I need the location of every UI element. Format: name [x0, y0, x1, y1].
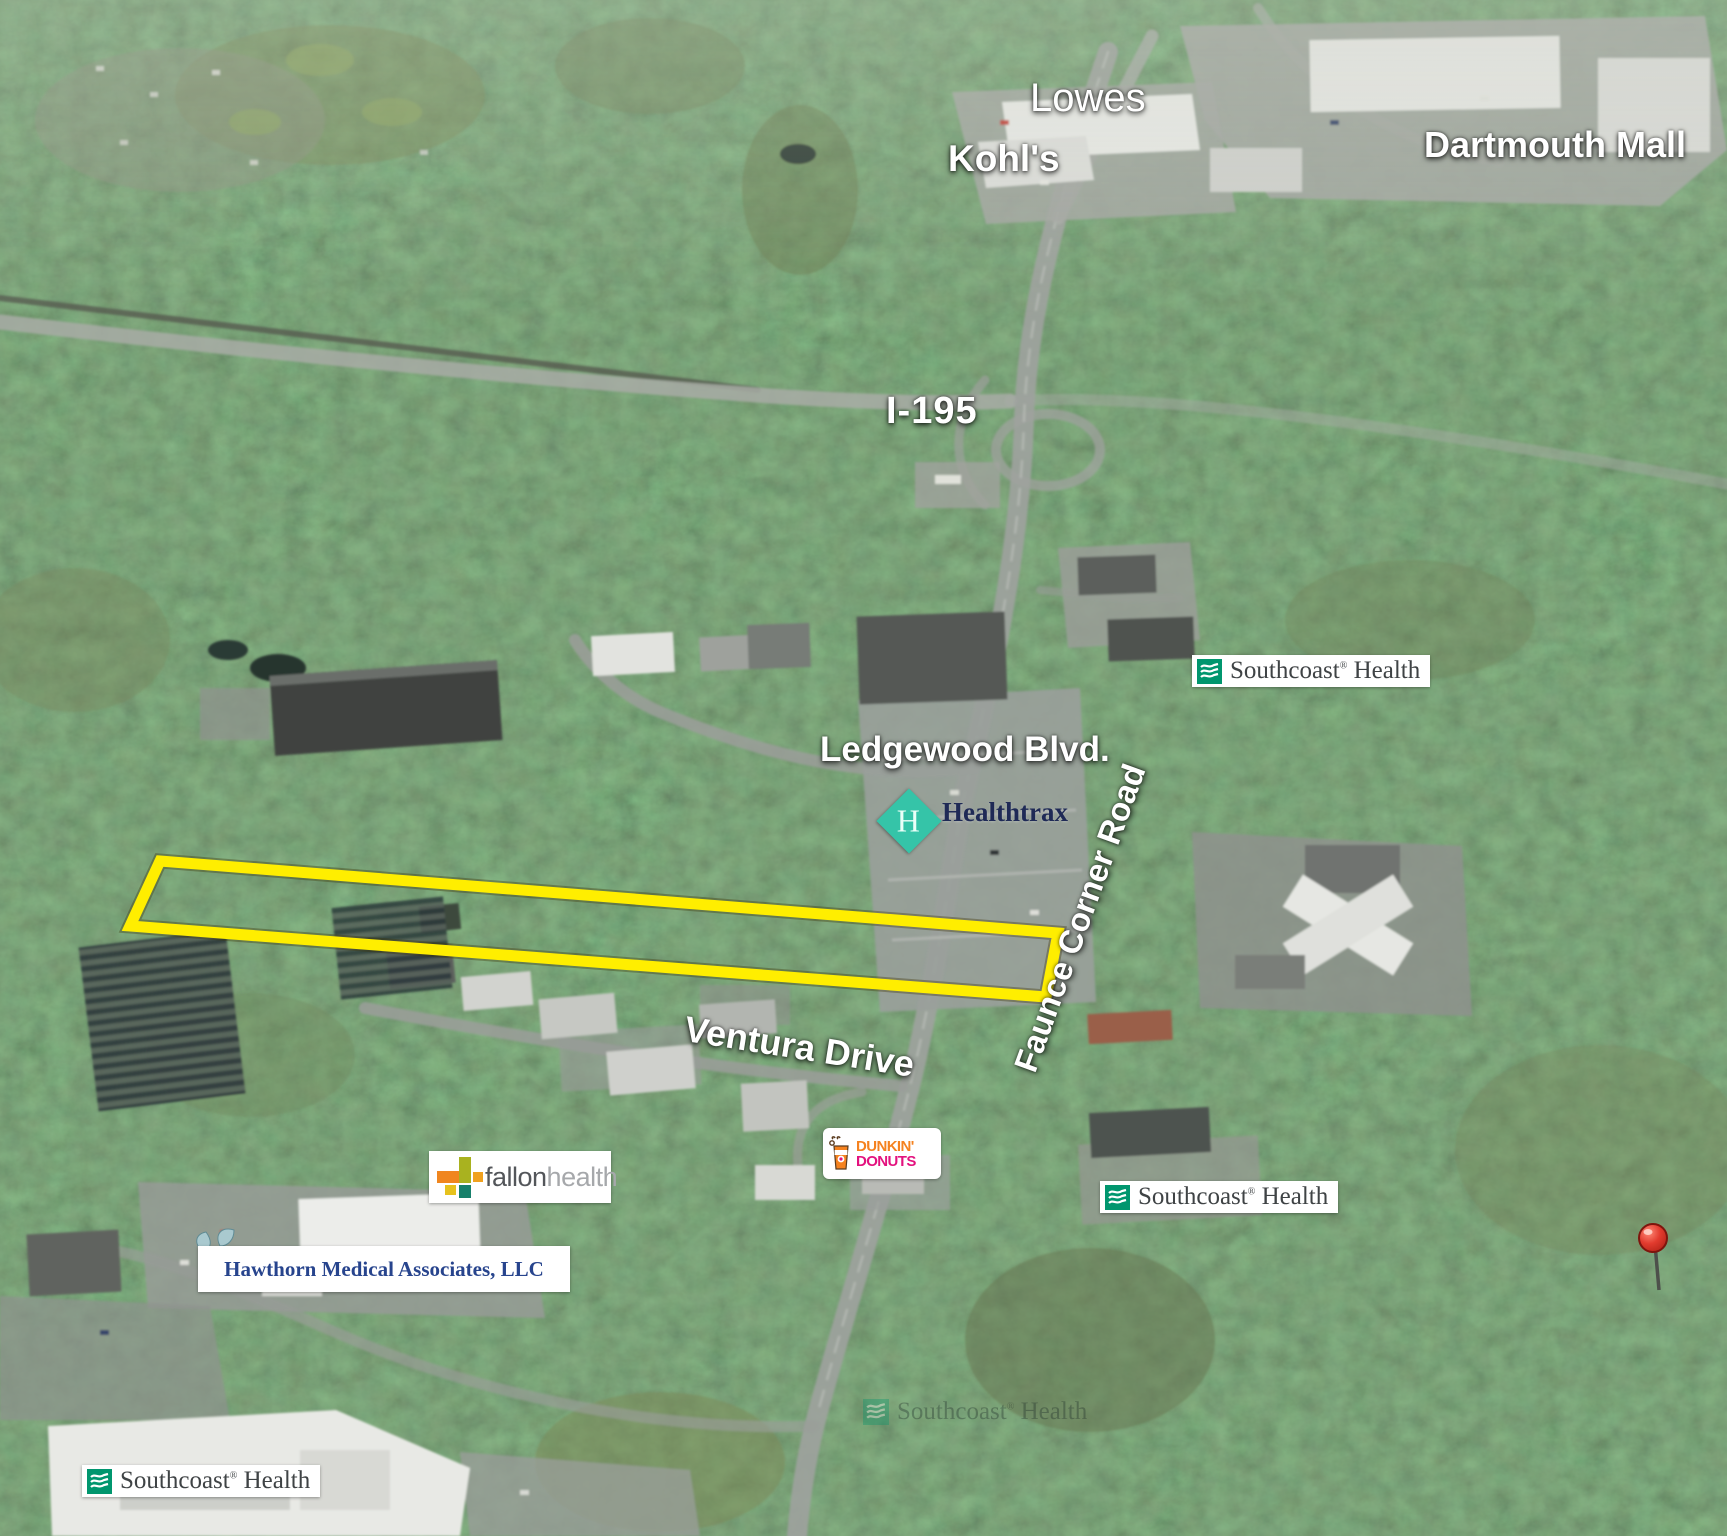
southcoast-health-text: Southcoast® Health [897, 1398, 1087, 1426]
southcoast-health-text: Southcoast® Health [120, 1467, 310, 1495]
southcoast-health-text: Southcoast® Health [1230, 657, 1420, 685]
fallon-wordmark: fallonhealth [485, 1162, 617, 1193]
healthtrax-monogram: H [897, 802, 920, 839]
fallon-health-label: fallonhealth [429, 1151, 611, 1203]
southcoast-health-label-north: Southcoast® Health [1192, 655, 1430, 687]
label-dartmouth-mall: Dartmouth Mall [1424, 124, 1686, 166]
dunkin-line2: DONUTS [856, 1154, 916, 1169]
healthtrax-building [857, 611, 1008, 704]
aerial-map: Lowes Kohl's Dartmouth Mall I-195 Ledgew… [0, 0, 1727, 1536]
southcoast-health-watermark: Southcoast® Health [858, 1396, 1097, 1428]
dunkin-donuts-label: DUNKIN' DONUTS [823, 1128, 941, 1179]
coffee-cup-icon [827, 1136, 853, 1172]
hawthorn-medical-label: Hawthorn Medical Associates, LLC [198, 1246, 570, 1292]
label-lowes: Lowes [1030, 76, 1146, 121]
label-ledgewood-blvd: Ledgewood Blvd. [820, 730, 1110, 770]
healthtrax-label: Healthtrax [942, 797, 1068, 828]
southcoast-wave-icon [87, 1469, 112, 1494]
label-kohls: Kohl's [948, 138, 1060, 180]
southcoast-wave-icon [1105, 1185, 1130, 1210]
label-i195: I-195 [886, 390, 978, 433]
hawthorn-medical-text: Hawthorn Medical Associates, LLC [224, 1257, 544, 1282]
southcoast-health-text: Southcoast® Health [1138, 1183, 1328, 1211]
red-pushpin-icon [1632, 1220, 1680, 1298]
dunkin-line1: DUNKIN' [856, 1139, 916, 1154]
southcoast-health-label-bottom: Southcoast® Health [82, 1465, 320, 1497]
fallon-cross-icon [435, 1155, 479, 1199]
dunkin-wordmark: DUNKIN' DONUTS [856, 1139, 916, 1169]
red-roof-building [1087, 1010, 1172, 1044]
southcoast-health-label-mid: Southcoast® Health [1100, 1181, 1338, 1213]
southcoast-wave-icon [863, 1399, 889, 1425]
southcoast-wave-icon [1197, 659, 1222, 684]
